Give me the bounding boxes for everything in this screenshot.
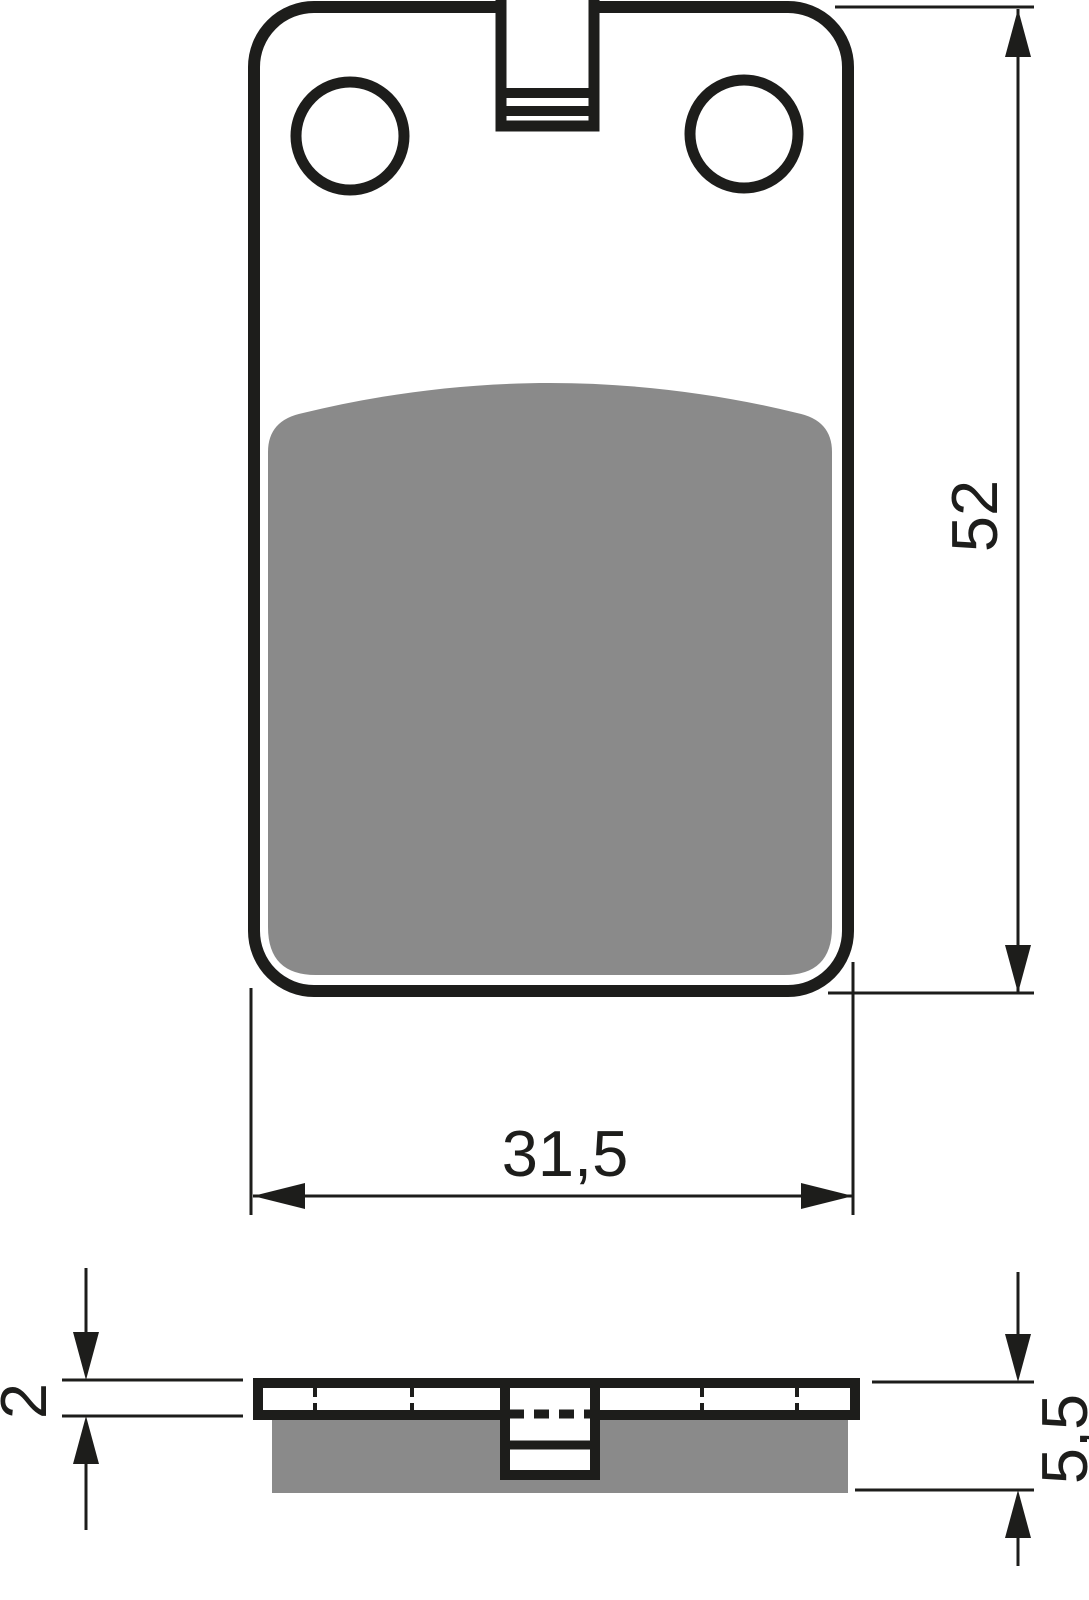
- arrowhead-up: [1005, 1490, 1031, 1538]
- mounting-hole-left: [296, 82, 404, 190]
- mounting-hole-right: [690, 80, 798, 188]
- brake-pad-drawing: 52 31,5: [0, 0, 1089, 1600]
- dimension-label-height: 52: [938, 480, 1011, 552]
- dimension-label-thickness: 2: [0, 1383, 60, 1419]
- front-view: [254, 0, 848, 991]
- dimension-total-thickness-5-5: 5,5: [855, 1272, 1089, 1566]
- side-view: [258, 1383, 855, 1493]
- arrowhead-up: [1005, 9, 1031, 57]
- dimension-label-width: 31,5: [502, 1117, 629, 1190]
- arrowhead-right: [801, 1183, 853, 1209]
- arrowhead-down: [1005, 945, 1031, 993]
- dimension-width-31-5: 31,5: [251, 962, 853, 1215]
- arrowhead-up: [73, 1416, 99, 1464]
- spring-tab-side: [505, 1383, 595, 1475]
- arrowhead-down: [73, 1332, 99, 1380]
- arrowhead-left: [253, 1183, 305, 1209]
- dimension-thickness-2: 2: [0, 1268, 243, 1530]
- dimension-label-total-thickness: 5,5: [1028, 1394, 1089, 1484]
- dimension-height-52: 52: [828, 7, 1034, 993]
- technical-drawing-canvas: 52 31,5: [0, 0, 1089, 1600]
- arrowhead-down: [1005, 1334, 1031, 1382]
- friction-material: [268, 383, 832, 975]
